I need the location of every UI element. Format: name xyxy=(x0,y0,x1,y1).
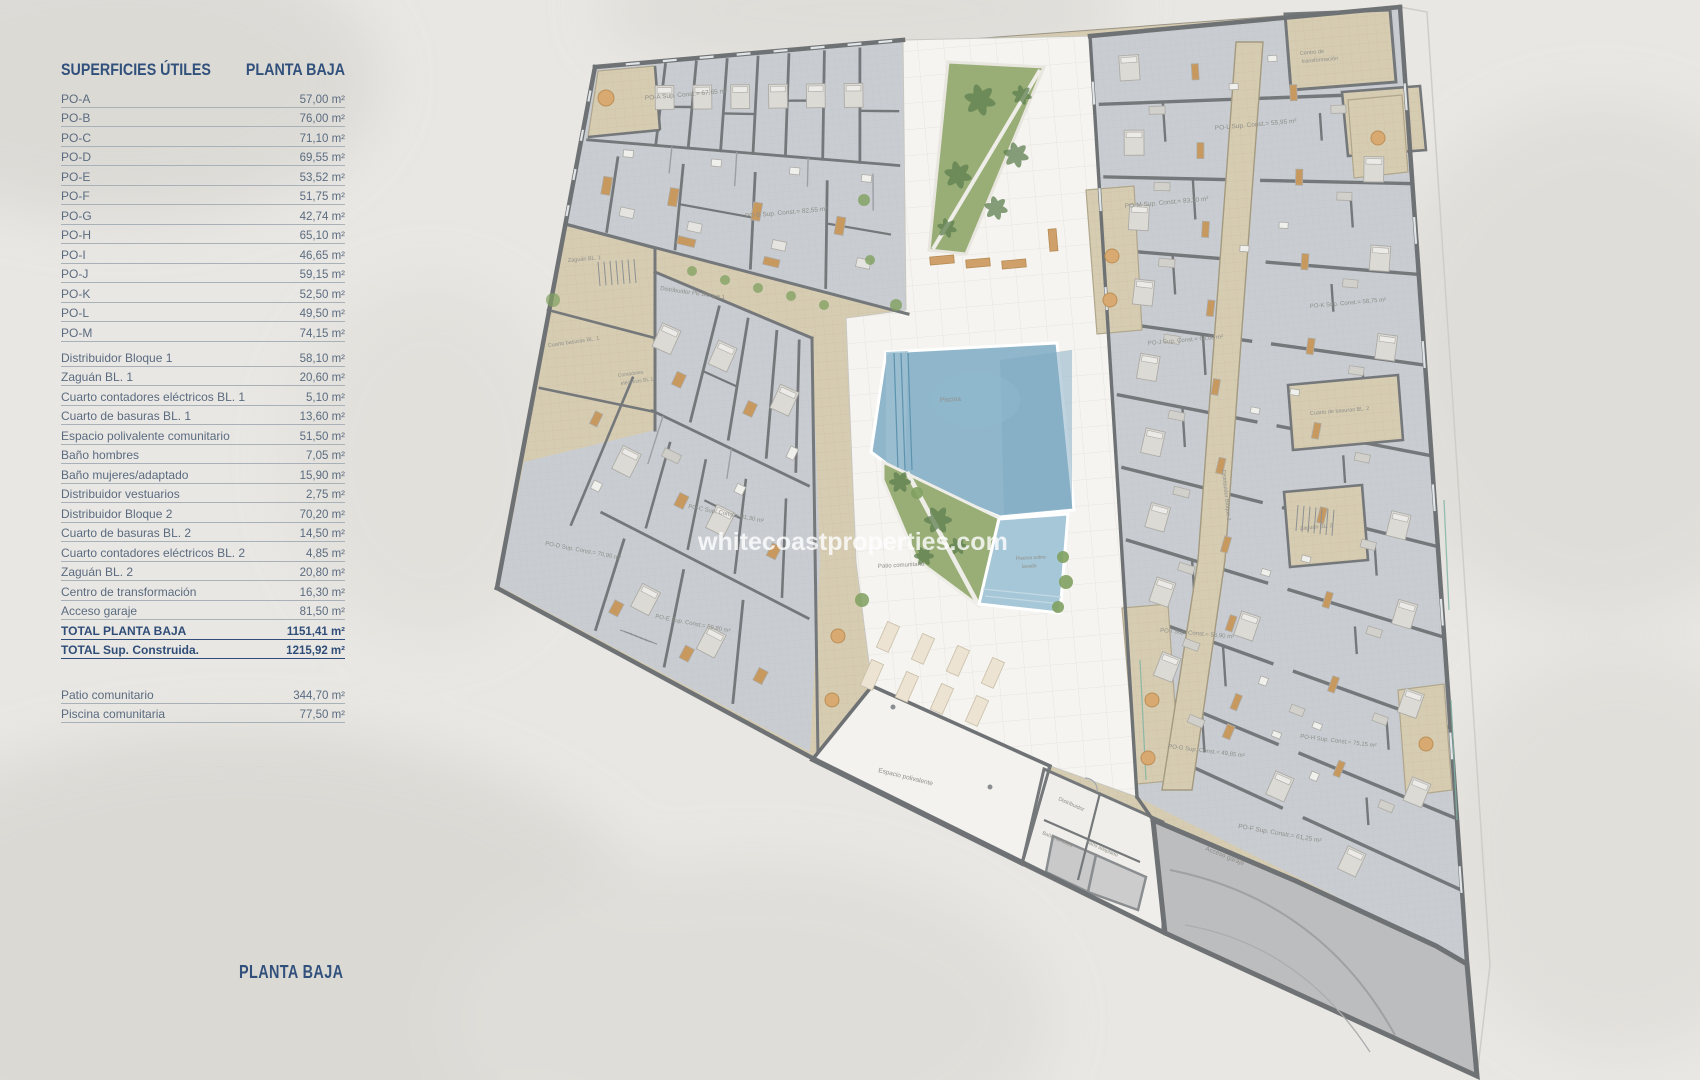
svg-text:lavado: lavado xyxy=(1022,563,1037,570)
svg-text:Piscina: Piscina xyxy=(940,396,962,404)
svg-text:whitecoastproperties.com: whitecoastproperties.com xyxy=(697,528,1008,556)
